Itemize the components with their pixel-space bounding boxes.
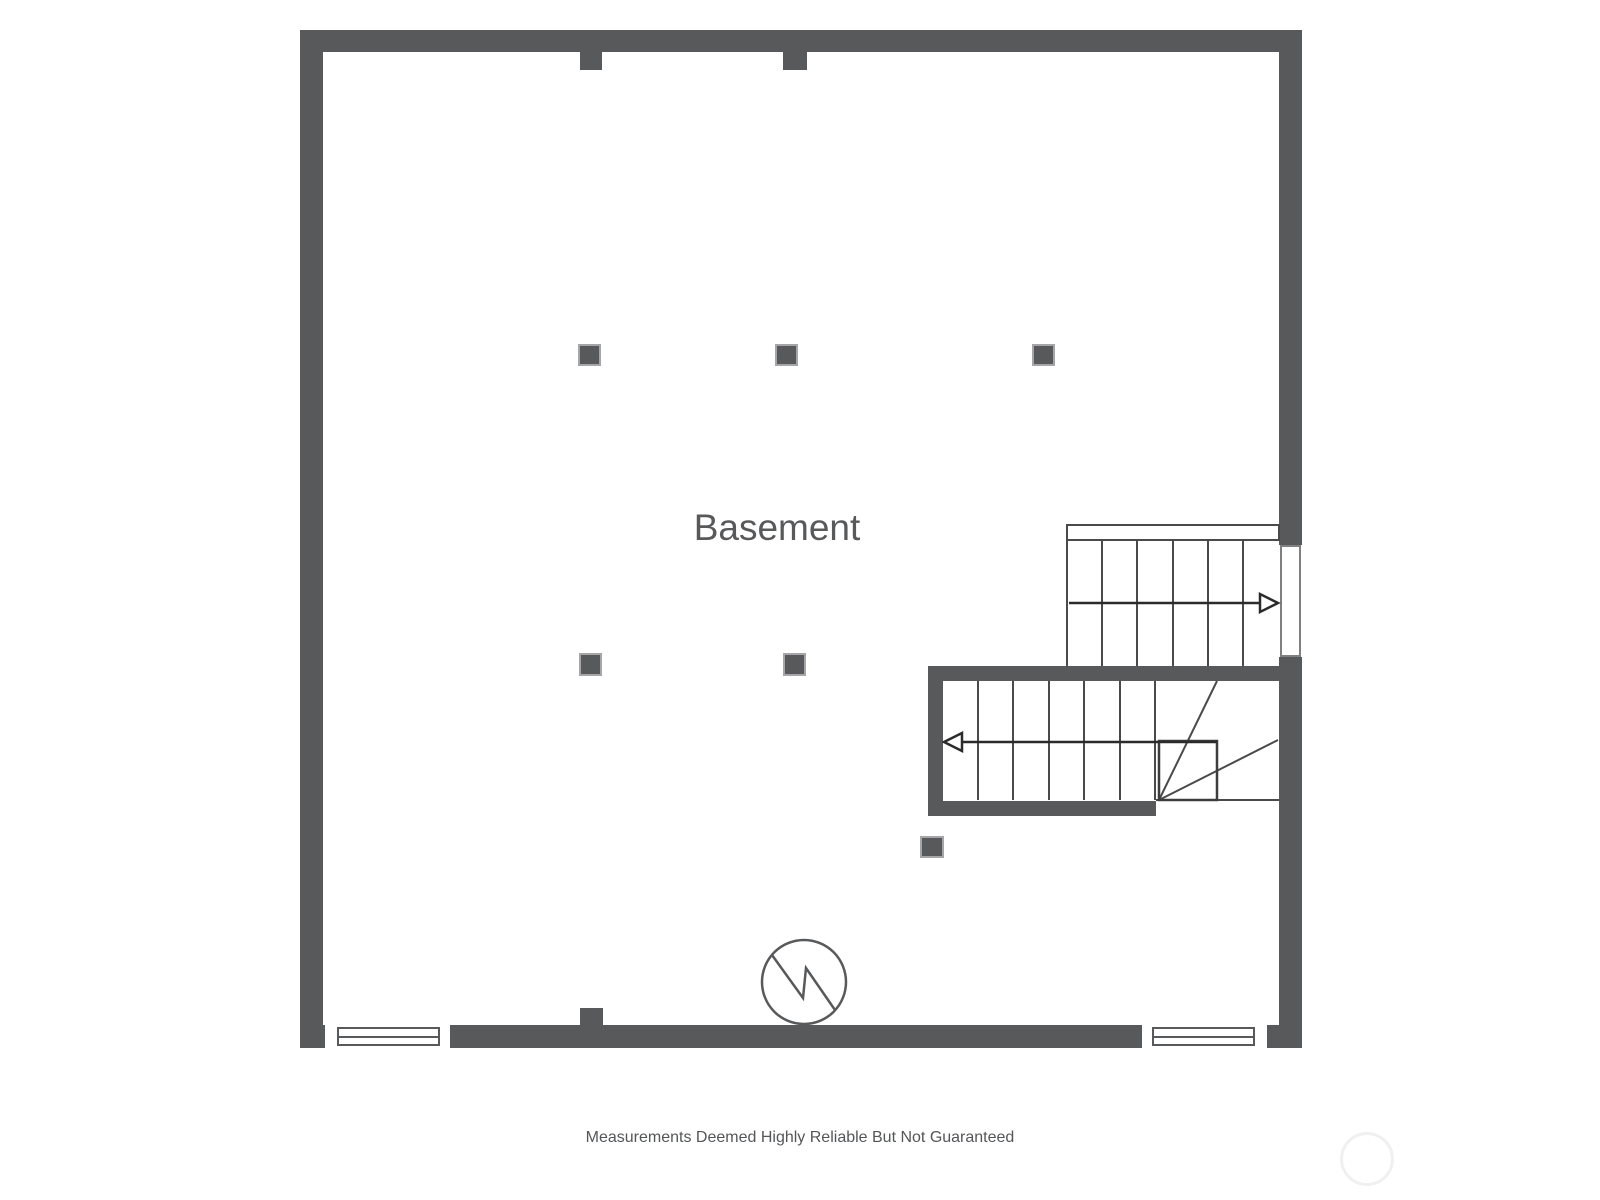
floor-plan: Basement Measurements Deemed Highly Reli…: [0, 0, 1600, 1200]
wall-right-upper: [1279, 30, 1302, 545]
window-bottom-left: [337, 1027, 440, 1046]
stair-up-arrow-icon: [1260, 594, 1278, 612]
wall-right-lower: [1279, 657, 1302, 1048]
stair-winder-tread: [1159, 741, 1217, 800]
stairwell-wall-bottom: [928, 801, 1156, 816]
column-post-bottom: [580, 1008, 603, 1026]
column-post-row2-2: [783, 653, 806, 676]
stair-winder-line-1: [1159, 681, 1217, 800]
wall-bottom-right-corner: [1267, 1025, 1302, 1048]
watermark-circle-icon: [1340, 1132, 1394, 1186]
utility-zigzag: [772, 955, 835, 1010]
column-post-row1-1: [578, 344, 601, 366]
wall-bottom-left-corner: [300, 1025, 325, 1048]
wall-top: [300, 30, 1302, 52]
stair-treads: [1067, 540, 1243, 666]
stairwell-wall-left: [928, 666, 943, 816]
wall-left: [300, 30, 323, 1048]
stair-treads: [978, 681, 1155, 800]
stair-upper-flight: [1067, 525, 1279, 666]
utility-circle: [762, 940, 846, 1024]
stair-landing-opening: [1280, 545, 1301, 657]
column-post-near-stairs: [920, 836, 944, 858]
column-post-top-2: [783, 51, 807, 70]
stair-down-arrow-icon: [944, 733, 962, 751]
room-label: Basement: [627, 506, 927, 550]
column-post-row1-2: [775, 344, 798, 366]
stairwell-wall-top: [928, 666, 1302, 681]
window-glass-line: [1153, 1036, 1254, 1038]
column-post-row1-3: [1032, 344, 1055, 366]
column-post-top-1: [580, 51, 602, 70]
window-glass-line: [338, 1036, 439, 1038]
column-post-row2-1: [579, 653, 602, 676]
stair-lower-flight: [944, 681, 1279, 800]
stair-winder-line-2: [1159, 740, 1278, 800]
utility-circle-icon: [762, 940, 846, 1024]
wall-bottom-center: [450, 1025, 1142, 1048]
stair-top-nosing: [1067, 525, 1279, 540]
window-bottom-right: [1152, 1027, 1255, 1046]
stairs-and-symbols-layer: [0, 0, 1600, 1200]
